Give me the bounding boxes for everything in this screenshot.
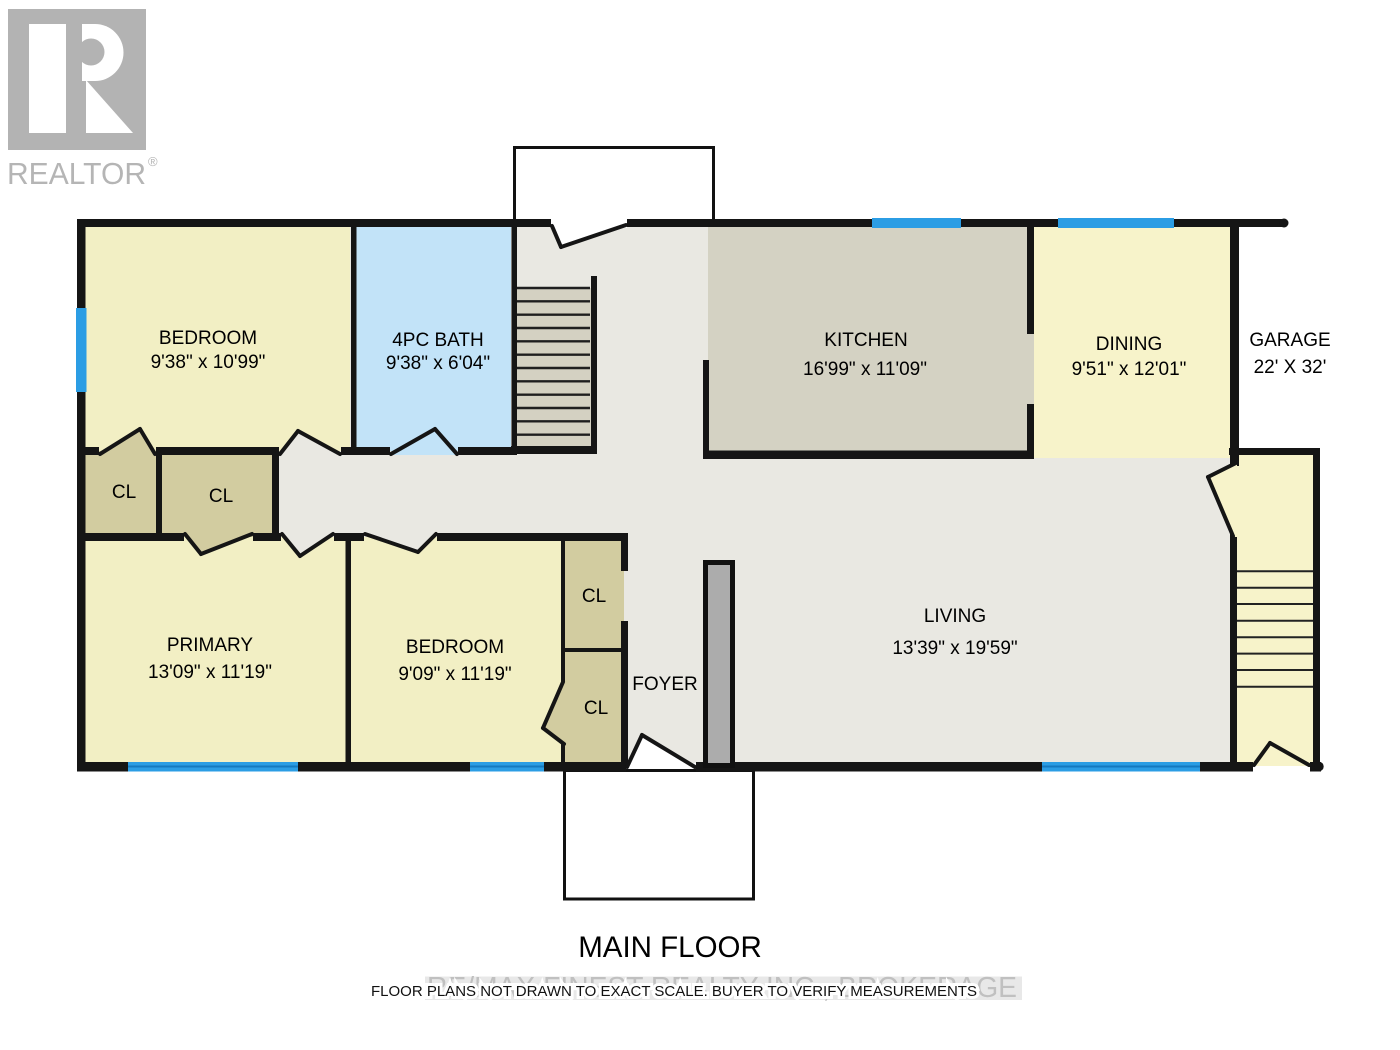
svg-text:13'09" x 11'19": 13'09" x 11'19" <box>148 662 272 683</box>
svg-text:9'09" x 11'19": 9'09" x 11'19" <box>398 664 511 685</box>
svg-text:13'39" x 19'59": 13'39" x 19'59" <box>892 638 1017 659</box>
svg-text:CL: CL <box>209 486 233 507</box>
svg-text:CL: CL <box>112 482 136 503</box>
svg-text:GARAGE: GARAGE <box>1249 330 1330 351</box>
svg-text:4PC BATH: 4PC BATH <box>392 330 484 351</box>
svg-text:16'99" x 11'09": 16'99" x 11'09" <box>803 359 927 380</box>
svg-text:22' X 32': 22' X 32' <box>1254 357 1327 378</box>
svg-text:BEDROOM: BEDROOM <box>406 637 504 658</box>
svg-text:FOYER: FOYER <box>632 674 697 695</box>
svg-text:FLOOR PLANS NOT DRAWN TO EXACT: FLOOR PLANS NOT DRAWN TO EXACT SCALE. BU… <box>371 983 977 1000</box>
svg-text:PRIMARY: PRIMARY <box>167 635 254 656</box>
svg-text:®: ® <box>148 154 158 169</box>
svg-text:BEDROOM: BEDROOM <box>159 328 257 349</box>
svg-text:9'38" x 6'04": 9'38" x 6'04" <box>386 353 490 374</box>
svg-text:REALTOR: REALTOR <box>7 156 146 191</box>
svg-text:DINING: DINING <box>1096 334 1163 355</box>
svg-text:9'38" x 10'99": 9'38" x 10'99" <box>151 352 266 373</box>
svg-text:CL: CL <box>582 586 606 607</box>
svg-text:CL: CL <box>584 698 608 719</box>
svg-text:9'51" x 12'01": 9'51" x 12'01" <box>1072 359 1187 380</box>
svg-text:MAIN FLOOR: MAIN FLOOR <box>578 931 762 964</box>
svg-text:KITCHEN: KITCHEN <box>824 330 907 351</box>
svg-text:LIVING: LIVING <box>924 606 986 627</box>
